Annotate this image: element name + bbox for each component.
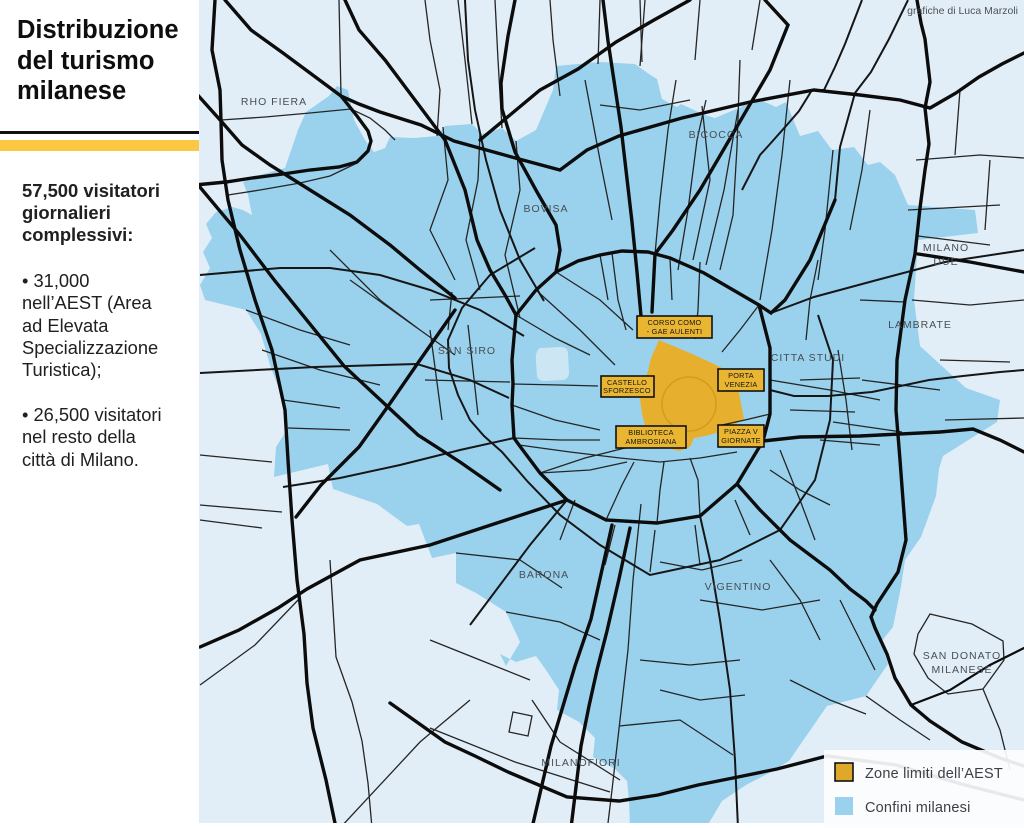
svg-text:PIAZZA V: PIAZZA V (724, 427, 758, 436)
svg-text:Zone limiti dell’AEST: Zone limiti dell’AEST (865, 766, 1003, 782)
svg-text:SAN SIRO: SAN SIRO (438, 345, 496, 357)
svg-text:- GAE AULENTI: - GAE AULENTI (647, 327, 703, 336)
svg-text:BOVISA: BOVISA (523, 203, 568, 215)
svg-text:AMBROSIANA: AMBROSIANA (625, 437, 676, 446)
svg-text:MILANOFIORI: MILANOFIORI (541, 757, 620, 769)
svg-text:BICOCCA: BICOCCA (689, 129, 744, 141)
svg-text:CORSO COMO: CORSO COMO (648, 318, 702, 327)
svg-text:grafiche di Luca Marzoli: grafiche di Luca Marzoli (907, 5, 1018, 17)
svg-text:LAMBRATE: LAMBRATE (888, 319, 952, 331)
svg-text:MILANO: MILANO (923, 242, 969, 254)
svg-text:VIGENTINO: VIGENTINO (705, 581, 772, 593)
svg-text:CITTA STUDI: CITTA STUDI (771, 352, 845, 364)
svg-text:BARONA: BARONA (519, 569, 569, 581)
svg-text:DUE: DUE (933, 256, 958, 268)
svg-text:MILANESE: MILANESE (931, 664, 992, 676)
svg-text:PORTA: PORTA (728, 371, 754, 380)
svg-text:BIBLIOTECA: BIBLIOTECA (628, 428, 673, 437)
svg-text:VENEZIA: VENEZIA (725, 380, 758, 389)
svg-text:RHO FIERA: RHO FIERA (241, 96, 307, 108)
svg-text:SFORZESCO: SFORZESCO (603, 386, 651, 395)
svg-text:GIORNATE: GIORNATE (721, 436, 761, 445)
svg-text:Confini milanesi: Confini milanesi (865, 800, 971, 816)
svg-text:SAN DONATO: SAN DONATO (923, 650, 1001, 662)
